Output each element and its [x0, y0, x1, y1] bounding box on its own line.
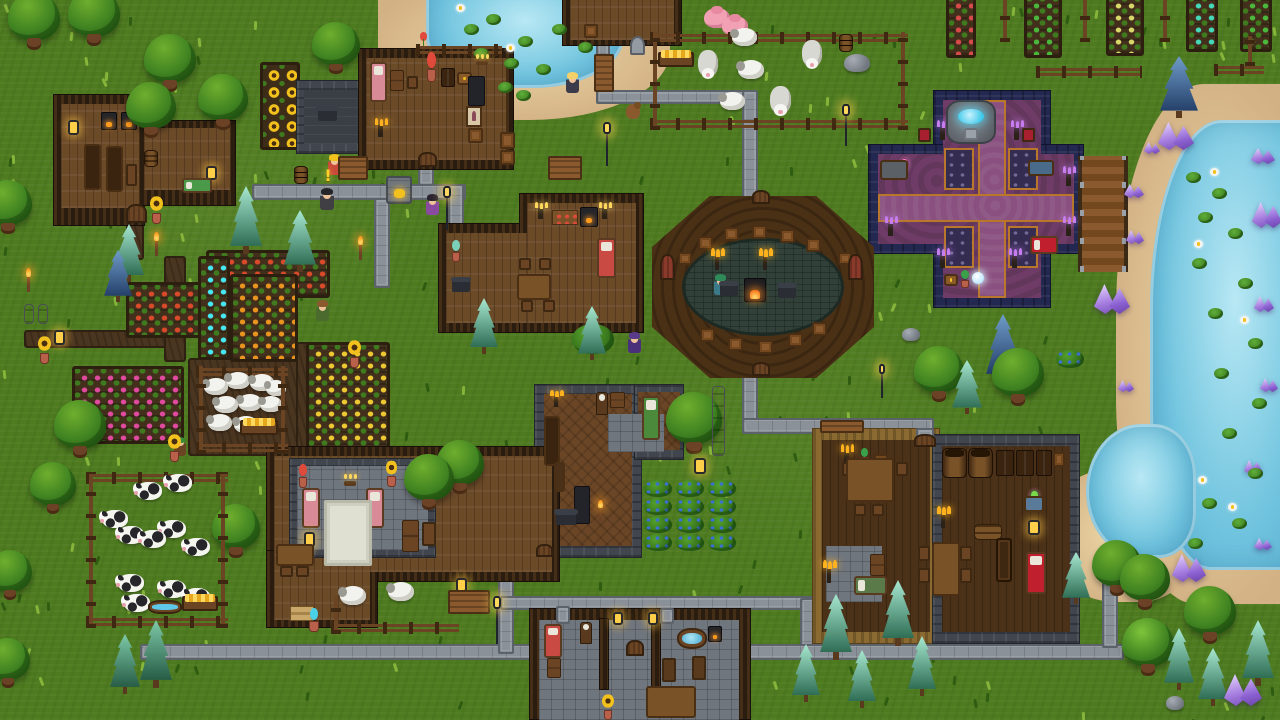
wooden-dock	[1078, 156, 1128, 272]
grass-tuft	[253, 174, 256, 183]
grass-tuft	[0, 602, 6, 611]
water-trough	[148, 600, 182, 614]
rock	[1166, 696, 1184, 710]
purple-crystal	[1124, 184, 1144, 198]
gravestone	[630, 36, 645, 55]
oak-tree	[68, 0, 120, 46]
water-flower	[1194, 240, 1203, 248]
candelabra	[756, 248, 774, 270]
sheep[interactable]	[738, 60, 764, 79]
grass-tuft	[299, 665, 304, 674]
grass-tuft	[973, 698, 978, 707]
candelabra	[708, 248, 726, 270]
cow[interactable]	[102, 510, 128, 528]
building-wall	[651, 618, 661, 690]
npc-quest-giver[interactable]	[320, 190, 334, 210]
chair	[126, 164, 137, 186]
goat[interactable]	[698, 50, 718, 77]
fence	[331, 622, 459, 634]
lantern	[68, 120, 79, 135]
offering-shrine[interactable]	[386, 176, 412, 204]
fence	[1214, 64, 1264, 76]
grass-tuft	[764, 72, 768, 81]
grass-tuft	[39, 677, 45, 686]
stone-pillar	[24, 304, 34, 324]
rock	[844, 54, 870, 72]
crate	[812, 322, 827, 336]
chest[interactable]	[944, 274, 958, 286]
grass-tuft	[635, 356, 640, 365]
cabinet	[1016, 450, 1034, 476]
lily-pad	[1212, 188, 1227, 199]
bed	[642, 396, 660, 440]
grass-tuft	[11, 155, 14, 164]
grass-tuft	[986, 681, 991, 690]
chair	[960, 568, 972, 583]
crate	[1053, 452, 1065, 467]
blueberry-bush	[708, 480, 736, 497]
stone-pillar	[38, 304, 48, 324]
table	[880, 160, 908, 180]
lily-pad	[536, 64, 551, 75]
grass-tuft	[404, 432, 408, 441]
barrel	[839, 34, 853, 52]
chair	[692, 656, 706, 680]
purple-crystal	[1094, 284, 1130, 314]
grass-tuft	[826, 97, 829, 106]
chair	[296, 566, 309, 577]
bench	[820, 420, 864, 433]
loom	[574, 486, 590, 524]
crate	[758, 340, 773, 354]
lily-pad	[1232, 518, 1247, 529]
fence	[1000, 0, 1010, 42]
purple-crystal	[1172, 554, 1206, 582]
purple-crystal	[1254, 296, 1274, 312]
purple-crystal	[1260, 378, 1278, 392]
game-world-viewport[interactable]: !	[0, 0, 1280, 720]
goat[interactable]	[802, 40, 822, 67]
torch	[152, 232, 161, 256]
cabinet	[996, 450, 1014, 476]
crop-plot-grain	[1106, 0, 1144, 56]
lantern	[54, 330, 65, 345]
grass-tuft	[255, 461, 261, 470]
street-lamp	[440, 186, 454, 230]
fence	[1036, 66, 1142, 78]
sheep[interactable]	[204, 378, 228, 395]
grass-tuft	[305, 692, 310, 701]
table	[646, 686, 696, 718]
cow[interactable]	[124, 594, 150, 612]
inn-door[interactable]	[914, 434, 936, 447]
bench	[338, 156, 368, 180]
cow[interactable]	[140, 530, 166, 548]
cow-pen-fence	[86, 472, 96, 628]
torch	[596, 500, 605, 522]
grass-tuft	[986, 693, 990, 702]
cow-pen-fence	[218, 472, 228, 628]
pine-tree	[1160, 56, 1198, 118]
candelabra	[596, 202, 613, 219]
purple-crystal	[1144, 142, 1160, 154]
pine-tree	[140, 620, 172, 688]
grass-tuft	[890, 303, 896, 312]
table	[932, 542, 960, 596]
lily-pad	[518, 36, 533, 47]
table	[554, 462, 565, 492]
stone-path	[660, 608, 674, 624]
chair	[519, 258, 531, 270]
pine-tree	[110, 634, 140, 694]
purple-crystal	[1224, 674, 1262, 706]
blueberry-bush	[676, 480, 704, 497]
bedroom-house-door[interactable]	[418, 152, 437, 167]
candelabra	[1006, 248, 1023, 268]
sunflower-pot	[346, 340, 363, 368]
sunflower-pot	[600, 694, 616, 720]
chair	[539, 258, 551, 270]
forge-furnace	[744, 278, 766, 302]
grass-tuft	[1221, 40, 1226, 49]
blueberry-bush	[644, 516, 672, 533]
rug	[324, 500, 372, 566]
dresser	[870, 554, 885, 576]
bed	[370, 62, 387, 102]
oak-tree	[992, 348, 1044, 406]
grass-tuft	[952, 675, 956, 684]
grass-tuft	[752, 560, 757, 569]
door[interactable]	[660, 254, 675, 280]
goat[interactable]	[770, 86, 791, 114]
pine-tree	[578, 306, 606, 360]
grass-tuft	[726, 157, 729, 166]
shelf	[552, 210, 578, 225]
bed	[302, 488, 320, 528]
grass-tuft	[1271, 54, 1275, 63]
crate	[752, 225, 767, 239]
candelabra	[820, 560, 838, 583]
grass-tuft	[406, 209, 410, 218]
animal-pen-fence	[650, 32, 660, 130]
lily-pad	[504, 58, 519, 69]
street-lamp	[876, 364, 888, 398]
candles	[342, 474, 358, 486]
grass-tuft	[129, 17, 132, 26]
grass-tuft	[457, 700, 463, 709]
grass-tuft	[852, 159, 858, 168]
pine-tree	[952, 360, 982, 414]
sheep-pen-fence	[196, 442, 288, 454]
keg	[968, 448, 993, 478]
clock-house-door[interactable]	[536, 544, 553, 557]
berry-bush	[1056, 350, 1084, 368]
painting	[466, 106, 482, 127]
pine-tree	[230, 186, 262, 254]
dog[interactable]	[626, 104, 640, 119]
fence	[331, 596, 341, 634]
oak-tree	[1120, 554, 1170, 610]
stone-pillar	[712, 386, 725, 456]
cabinet	[441, 68, 455, 87]
grandfather-clock	[580, 622, 592, 644]
candelabra	[532, 202, 549, 219]
grass-tuft	[1227, 18, 1231, 27]
stove	[580, 207, 598, 227]
purple-crystal	[1126, 230, 1144, 244]
couch	[996, 538, 1012, 582]
bed	[544, 624, 562, 658]
candelabra	[934, 248, 951, 268]
oak-tree	[126, 82, 176, 138]
crate	[780, 229, 795, 243]
grandfather-clock	[596, 392, 608, 415]
crate	[500, 132, 515, 149]
grass-tuft	[196, 56, 201, 65]
sheep[interactable]	[226, 372, 250, 389]
lily-pad	[578, 42, 593, 53]
sunflower-patch	[260, 62, 300, 150]
grass-tuft	[1094, 10, 1098, 19]
grass-tuft	[789, 167, 792, 176]
grass-tuft	[66, 319, 70, 328]
pine-tree	[104, 250, 132, 302]
npc-villager-beach[interactable]	[566, 74, 579, 93]
npc-mage-hooded[interactable]	[628, 334, 641, 353]
keg	[942, 448, 967, 478]
oak-tree	[0, 180, 32, 234]
chair	[854, 504, 866, 516]
candelabra	[372, 118, 389, 137]
grass-tuft	[259, 486, 262, 495]
tavern-north-door[interactable]	[752, 190, 770, 204]
cow[interactable]	[118, 574, 144, 592]
grass-tuft	[70, 543, 75, 552]
cow[interactable]	[166, 474, 192, 492]
pine-tree	[1164, 628, 1194, 690]
magic-orb	[972, 272, 984, 284]
lily-pad	[486, 14, 501, 25]
stove	[101, 112, 117, 130]
grass-tuft	[194, 666, 200, 675]
flower-pot	[306, 608, 322, 632]
purple-crystal	[1118, 380, 1134, 392]
flower-pot	[958, 270, 972, 288]
grass-tuft	[198, 38, 202, 47]
grass-tuft	[726, 466, 731, 475]
sheep-pen-fence	[278, 366, 288, 454]
crate	[724, 227, 739, 241]
candelabra	[1060, 166, 1077, 186]
chair	[960, 546, 972, 561]
blueberry-bush	[708, 516, 736, 533]
grass-tuft	[117, 457, 120, 466]
lily-pad	[1192, 258, 1207, 269]
grass-tuft	[793, 453, 798, 462]
dresser	[547, 658, 561, 678]
grass-tuft	[1043, 336, 1048, 345]
lily-pad	[1222, 428, 1237, 439]
chair	[521, 300, 533, 312]
npc-villager-purple-dress[interactable]	[426, 196, 439, 215]
blueberry-bush	[708, 498, 736, 515]
oak-tree	[198, 74, 248, 130]
table	[1028, 160, 1054, 176]
door[interactable]	[848, 254, 863, 280]
lily-pad	[1248, 338, 1263, 349]
oak-tree	[54, 400, 106, 458]
bath-tub	[677, 628, 707, 649]
grass-tuft	[392, 663, 398, 672]
oak-tree	[0, 550, 32, 600]
sheep[interactable]	[208, 414, 232, 431]
sunflower-pot	[36, 336, 53, 364]
oak-tree	[0, 638, 30, 688]
dresser	[610, 392, 625, 408]
anvil	[452, 280, 470, 292]
grass-tuft	[180, 232, 185, 241]
lily-pad	[498, 82, 513, 93]
crop-plot-herbs	[1186, 0, 1218, 52]
lily-pad	[1198, 212, 1213, 223]
grass-tuft	[84, 457, 90, 466]
barrel	[144, 150, 158, 167]
lily-pad	[1208, 308, 1223, 319]
chair	[918, 568, 930, 583]
anvil	[556, 512, 576, 525]
grass-tuft	[1270, 687, 1274, 696]
hay-trough	[240, 420, 278, 435]
anvil	[720, 284, 738, 296]
bath-house-door[interactable]	[626, 640, 644, 656]
lily-pad	[1214, 368, 1229, 379]
tavern-south-door[interactable]	[752, 362, 770, 376]
table	[517, 274, 551, 300]
water-flower	[1210, 168, 1219, 176]
grass-tuft	[639, 176, 644, 185]
crate	[584, 24, 598, 38]
bench	[548, 156, 582, 180]
lantern	[613, 612, 623, 625]
crate	[500, 150, 515, 165]
animal-pen-fence	[650, 32, 908, 44]
grass-tuft	[372, 170, 376, 179]
grass-tuft	[1082, 712, 1085, 720]
hay-trough	[658, 52, 694, 67]
dresser	[402, 520, 419, 552]
oak-tree	[404, 454, 454, 510]
grass-tuft	[878, 312, 883, 321]
blueberry-bush	[708, 534, 736, 551]
lily-pad	[1228, 228, 1243, 239]
temple-walkway	[878, 194, 1074, 222]
grass-tuft	[599, 582, 602, 591]
bed	[1030, 236, 1058, 254]
candelabra	[882, 216, 899, 236]
grass-tuft	[35, 605, 40, 614]
bed	[1026, 552, 1046, 594]
flower-pot	[449, 240, 463, 262]
crate	[678, 252, 692, 265]
crop-plot-crystal-flowers	[198, 256, 230, 360]
stone-path	[742, 90, 758, 202]
table	[1024, 496, 1044, 512]
crate	[468, 128, 483, 143]
fence	[1160, 0, 1170, 42]
sheep[interactable]	[340, 586, 366, 605]
grass-tuft	[104, 72, 108, 81]
table	[84, 144, 101, 190]
street-lamp	[839, 104, 853, 146]
bench	[448, 590, 490, 614]
torch	[24, 268, 33, 292]
chair	[918, 128, 931, 142]
cow[interactable]	[184, 538, 210, 556]
candles	[474, 54, 490, 65]
purple-crystal	[1254, 538, 1272, 550]
sheep-pen-fence	[196, 366, 206, 454]
fence	[1080, 0, 1090, 42]
grass-tuft	[809, 104, 813, 113]
blueberry-bush	[644, 498, 672, 515]
npc-farmer[interactable]	[316, 302, 329, 321]
sheep[interactable]	[214, 396, 238, 413]
purple-crystal	[1251, 148, 1275, 164]
bed	[597, 238, 616, 278]
crate	[788, 333, 803, 347]
grass-tuft	[884, 697, 889, 706]
stove	[708, 626, 722, 642]
sheep[interactable]	[388, 582, 414, 601]
lantern	[648, 612, 658, 625]
candelabra	[548, 390, 564, 407]
blueberry-bush	[676, 516, 704, 533]
grass-tuft	[1219, 52, 1225, 61]
blueberry-bush	[676, 534, 704, 551]
flower-pot	[296, 464, 310, 488]
torch	[356, 236, 365, 260]
lily-pad	[1252, 398, 1267, 409]
lily-pad	[1238, 278, 1253, 289]
oak-tree	[8, 0, 60, 50]
chair	[1022, 128, 1035, 142]
quest-exclamation-marker: !	[321, 168, 335, 186]
grass-tuft	[324, 635, 328, 644]
crop-plot-cabbage	[1024, 0, 1062, 58]
chair	[896, 462, 908, 476]
cow-pen-fence	[86, 472, 228, 484]
grass-tuft	[1012, 7, 1016, 16]
street-lamp	[600, 122, 614, 166]
crate	[728, 337, 743, 351]
grass-tuft	[798, 530, 802, 539]
workshop-door[interactable]	[126, 204, 147, 223]
animal-pen-fence	[898, 32, 908, 130]
sheep[interactable]	[720, 92, 745, 110]
table	[544, 416, 560, 466]
blueberry-bush	[676, 498, 704, 515]
sheep[interactable]	[732, 28, 757, 46]
stone-path	[742, 370, 758, 424]
grass-tuft	[175, 663, 181, 672]
loom	[468, 76, 485, 106]
cow[interactable]	[136, 482, 162, 500]
blueberry-bush	[644, 480, 672, 497]
water-flower	[1198, 476, 1207, 484]
grass-tuft	[773, 681, 779, 690]
table	[106, 146, 123, 192]
grass-tuft	[920, 111, 926, 120]
